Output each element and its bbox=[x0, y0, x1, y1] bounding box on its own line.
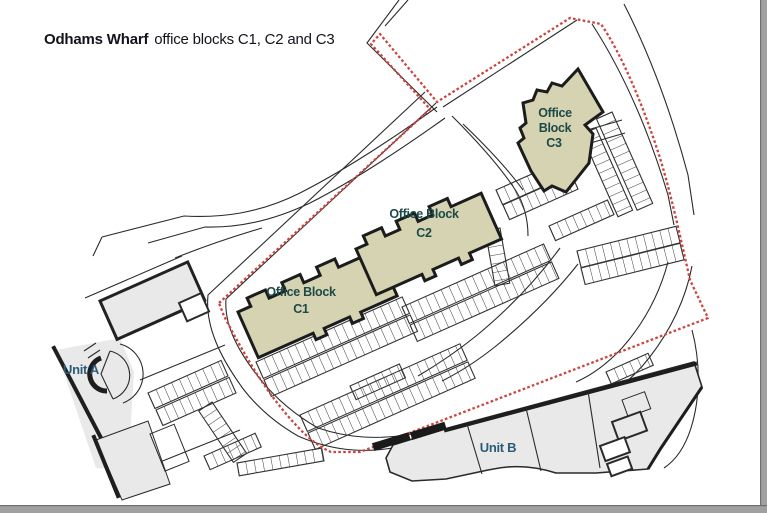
parking-row bbox=[549, 200, 614, 241]
unit-a-label: Unit A bbox=[63, 362, 100, 377]
road-left-segment bbox=[175, 228, 262, 258]
page-border-right-edge bbox=[760, 0, 761, 513]
page-border-right bbox=[761, 0, 767, 513]
page-border-bottom bbox=[0, 506, 767, 513]
site-plan-page: Odhams Wharfoffice blocks C1, C2 and C3 bbox=[0, 0, 767, 513]
office-block-c3-label-line3: C3 bbox=[546, 136, 562, 150]
office-block-c2-label-line2: C2 bbox=[416, 226, 432, 240]
road-end-hook bbox=[93, 237, 102, 256]
plan-title-subtitle: office blocks C1, C2 and C3 bbox=[154, 31, 334, 48]
office-block-c1-label-line2: C1 bbox=[293, 302, 309, 316]
office-block-c1-label-line1: Office Block bbox=[266, 285, 336, 299]
page-border-bottom-edge bbox=[0, 505, 767, 506]
plan-title: Odhams Wharfoffice blocks C1, C2 and C3 bbox=[44, 31, 335, 48]
road-top-bend bbox=[367, 0, 437, 112]
road-upperleft-1 bbox=[102, 107, 437, 237]
office-block-c3-label-line1: Office bbox=[538, 106, 572, 120]
site-plan-map: Office Block C1 Office Block C2 Office B… bbox=[0, 0, 767, 513]
office-block-c3-label-line2: Block bbox=[539, 121, 572, 135]
office-block-c2-label-line1: Office Block bbox=[389, 207, 459, 221]
unit-b-label: Unit B bbox=[480, 440, 516, 455]
road-to-c3-2 bbox=[463, 124, 523, 190]
plan-title-project: Odhams Wharf bbox=[44, 31, 148, 48]
